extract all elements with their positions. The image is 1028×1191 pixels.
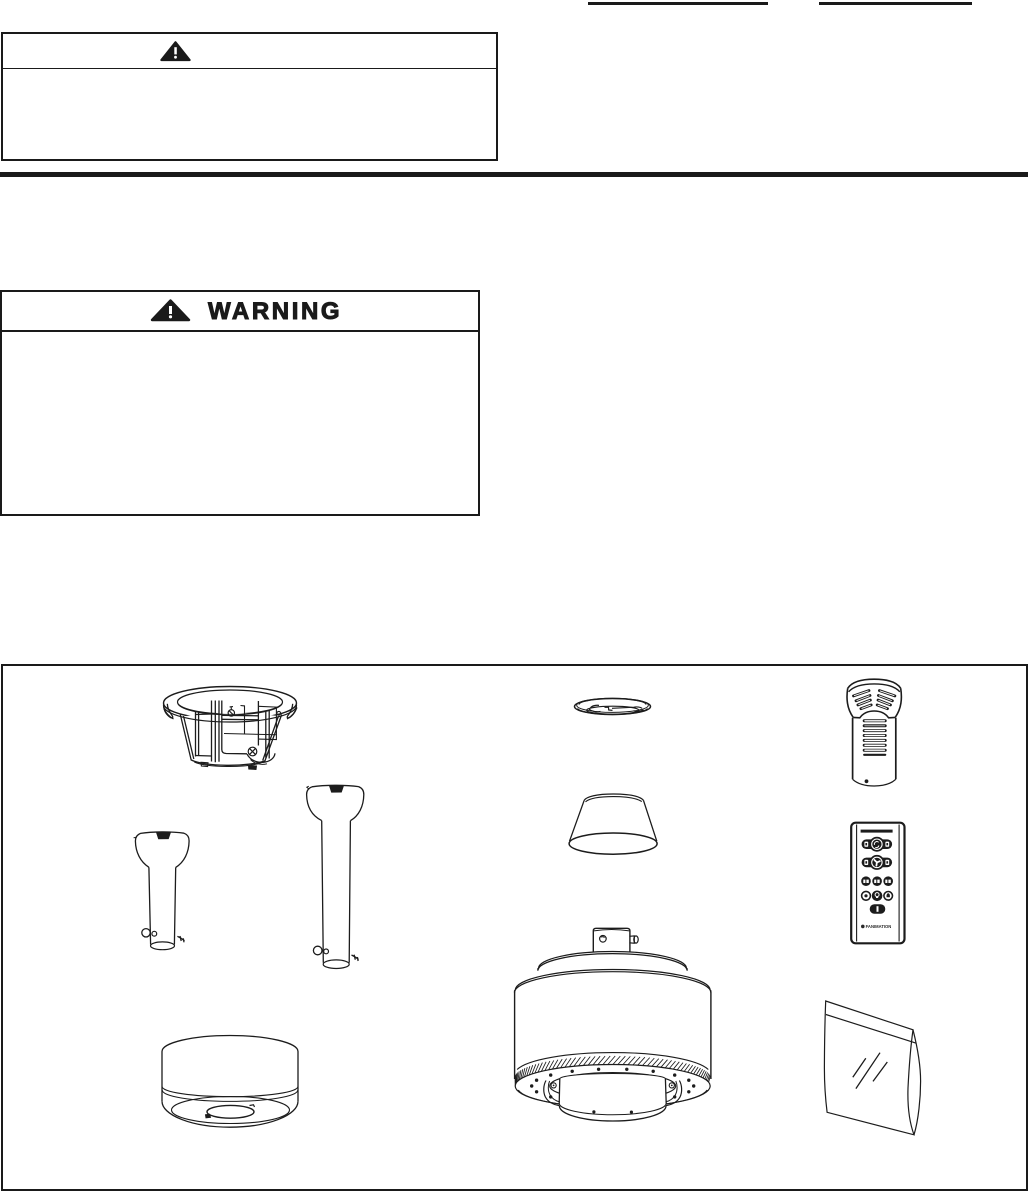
svg-text:FANIMATION: FANIMATION [866, 924, 892, 929]
